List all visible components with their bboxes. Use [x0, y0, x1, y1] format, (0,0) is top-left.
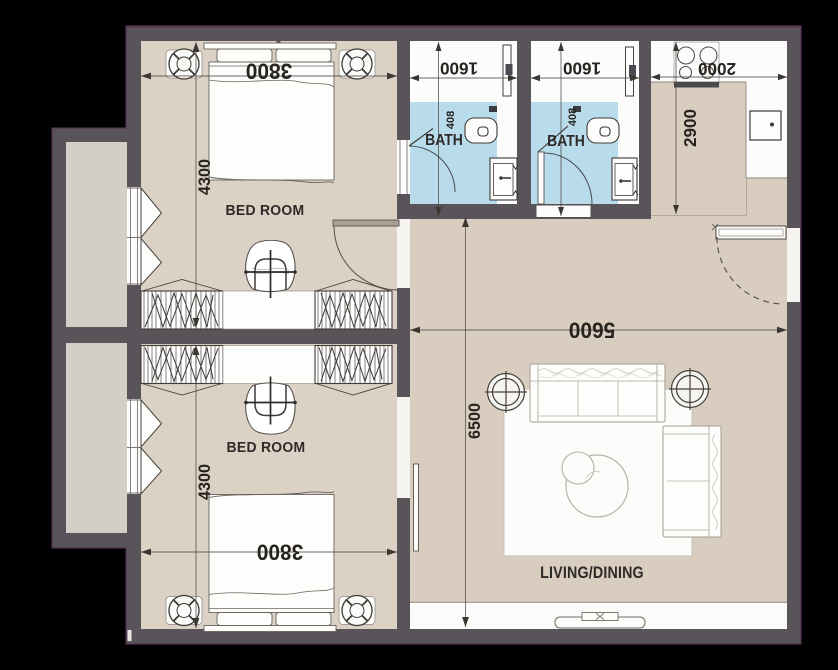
svg-text:1600: 1600	[440, 58, 478, 79]
svg-text:2900: 2900	[680, 109, 701, 147]
svg-text:3800: 3800	[257, 539, 304, 564]
svg-text:6500: 6500	[465, 403, 484, 439]
svg-text:408: 408	[445, 111, 457, 129]
svg-text:5600: 5600	[569, 317, 616, 342]
svg-text:3800: 3800	[246, 58, 293, 83]
svg-text:BATH: BATH	[425, 132, 463, 149]
svg-text:BED ROOM: BED ROOM	[227, 440, 306, 457]
svg-text:1600: 1600	[563, 58, 601, 79]
svg-text:BED ROOM: BED ROOM	[226, 203, 305, 220]
svg-text:408: 408	[567, 108, 579, 126]
svg-text:LIVING/DINING: LIVING/DINING	[540, 564, 644, 582]
svg-text:BATH: BATH	[547, 133, 585, 150]
svg-text:2000: 2000	[698, 59, 736, 80]
svg-text:4300: 4300	[195, 159, 214, 195]
svg-text:4300: 4300	[195, 464, 214, 500]
